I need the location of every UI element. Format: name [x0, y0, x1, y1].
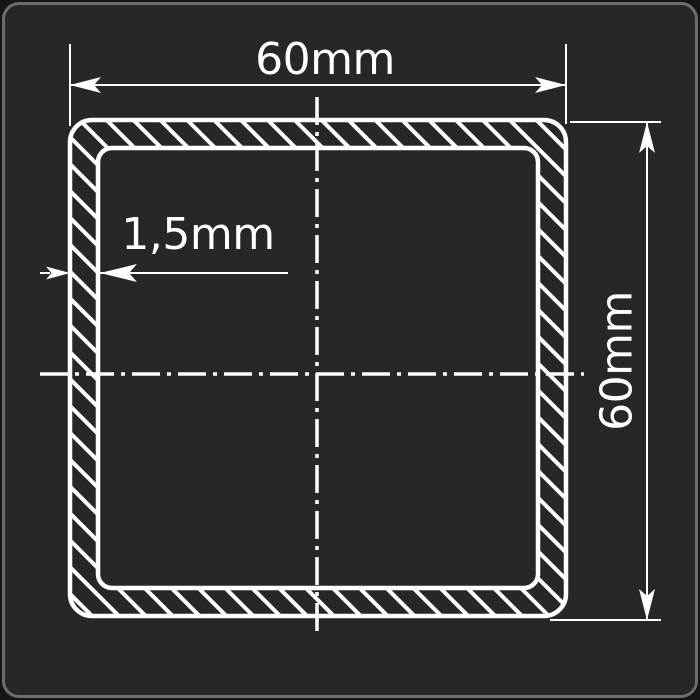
thickness-dimension-label: 1,5mm	[121, 209, 274, 260]
cross-section-drawing: 60mm 60mm 1,5mm	[0, 0, 700, 700]
height-dimension-label: 60mm	[592, 291, 643, 431]
width-dimension-label: 60mm	[255, 34, 395, 85]
